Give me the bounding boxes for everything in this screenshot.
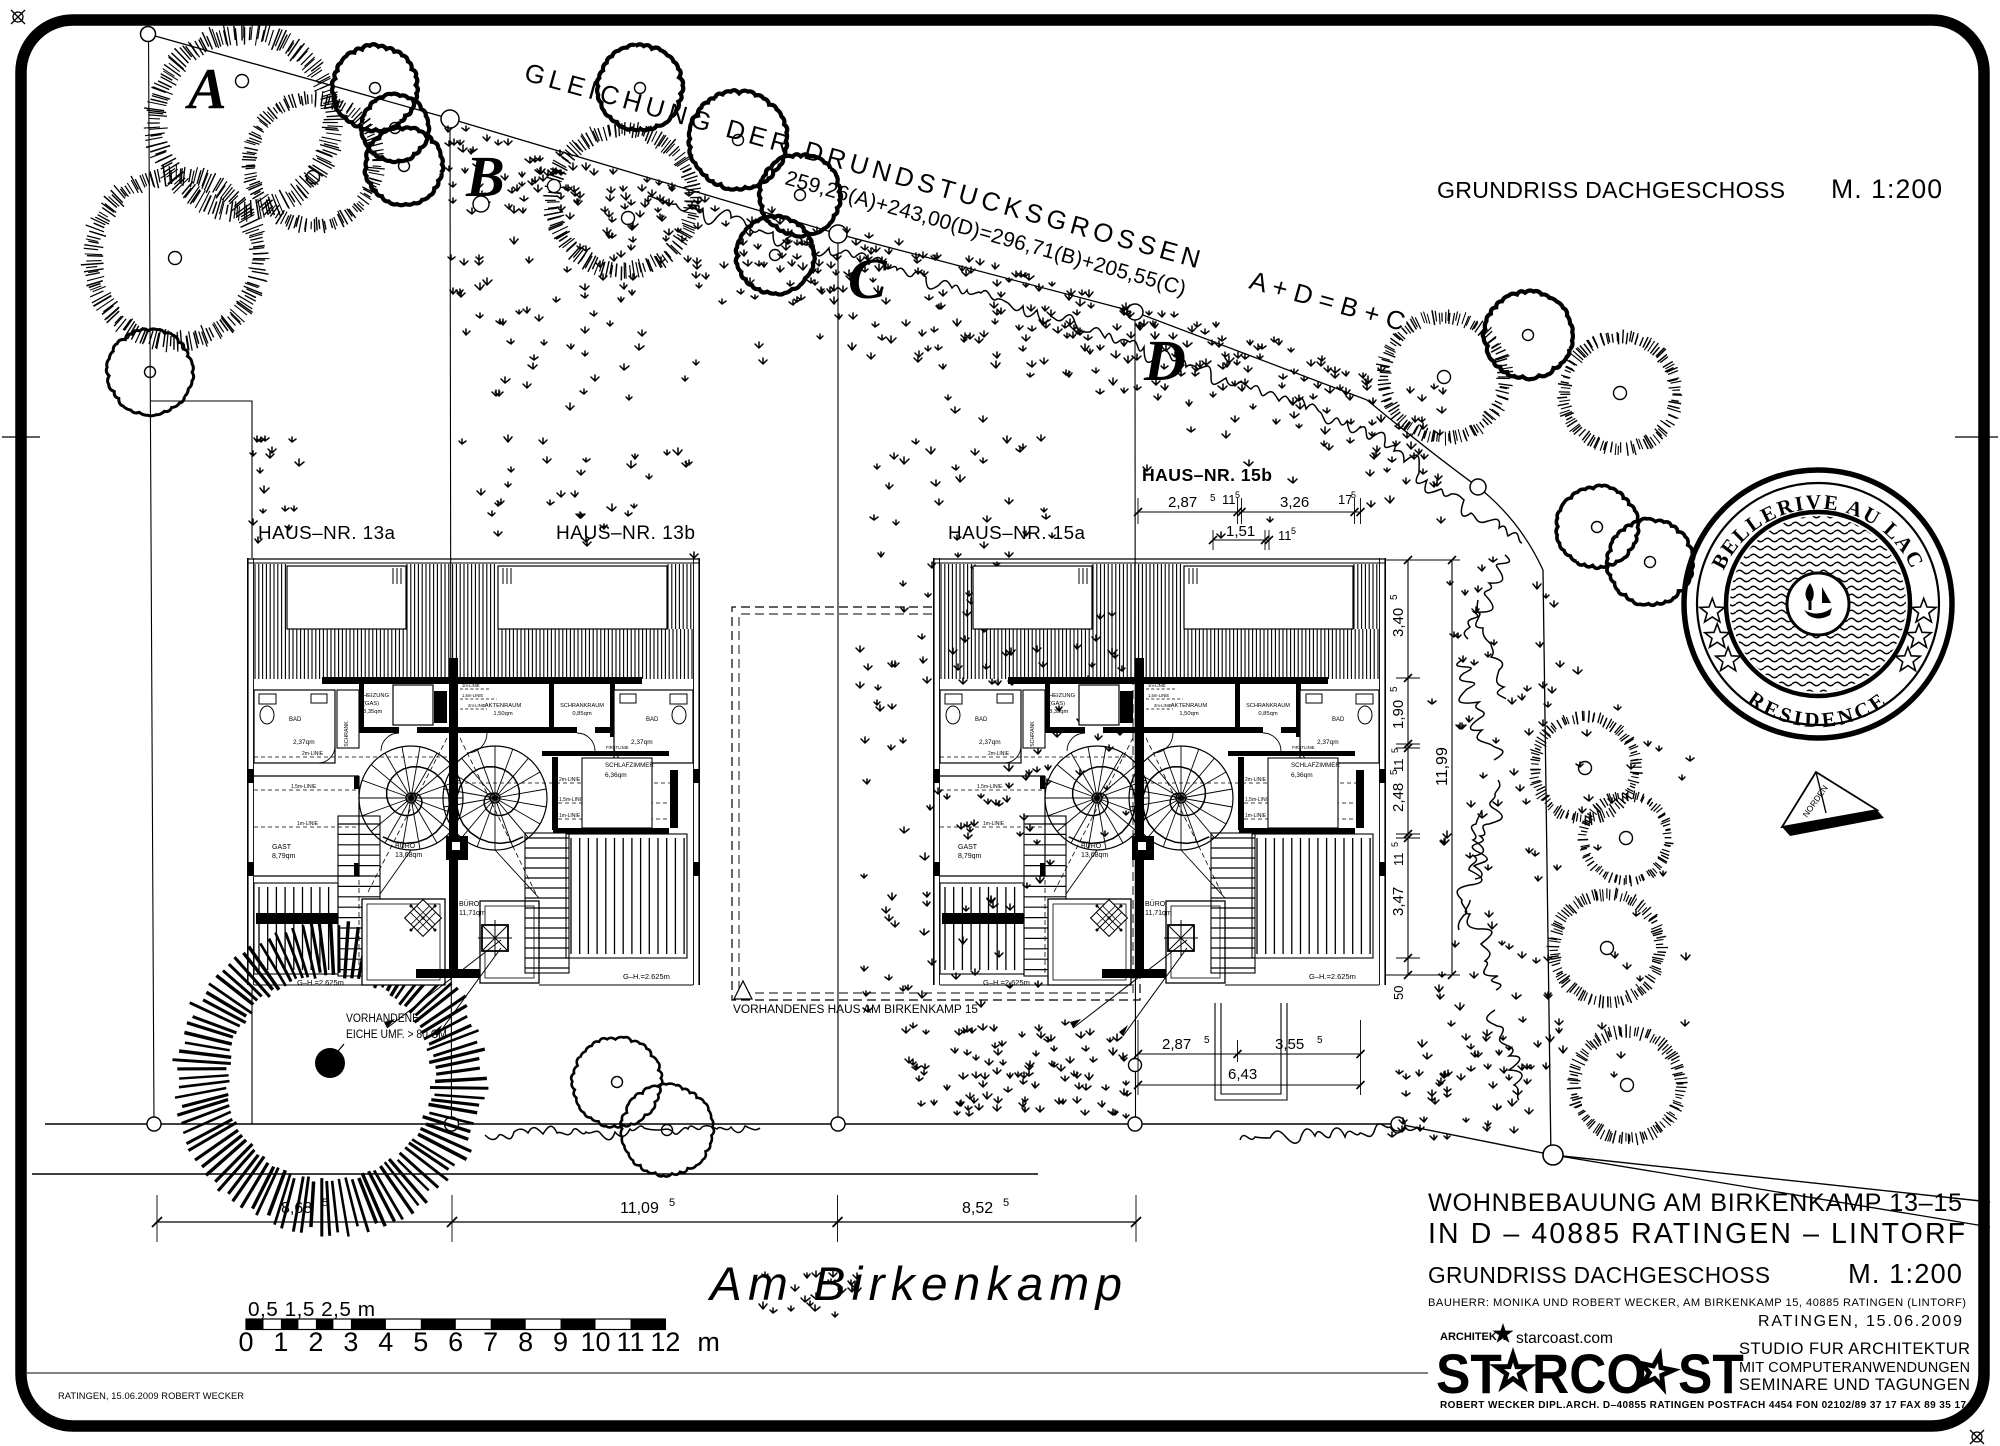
svg-text:3,40: 3,40: [1390, 608, 1407, 637]
svg-text:8,68: 8,68: [281, 1200, 312, 1217]
svg-text:5: 5: [1389, 594, 1400, 600]
svg-text:8: 8: [518, 1327, 533, 1357]
svg-text:2,48: 2,48: [1390, 783, 1407, 812]
svg-text:11: 11: [1391, 853, 1406, 867]
svg-text:m: m: [697, 1327, 720, 1357]
svg-text:M. 1:200: M. 1:200: [1848, 1258, 1962, 1289]
svg-text:2,87: 2,87: [1168, 494, 1197, 511]
svg-text:MIT COMPUTERANWENDUNGEN: MIT COMPUTERANWENDUNGEN: [1739, 1360, 1970, 1376]
svg-text:0: 0: [238, 1327, 253, 1357]
svg-text:2: 2: [308, 1327, 323, 1357]
svg-text:1,90: 1,90: [1390, 700, 1407, 729]
svg-text:5: 5: [1235, 490, 1240, 500]
svg-text:5: 5: [1390, 748, 1400, 753]
svg-text:STUDIO FUR ARCHITEKTUR: STUDIO FUR ARCHITEKTUR: [1739, 1340, 1970, 1358]
svg-text:Am Birkenkamp: Am Birkenkamp: [707, 1258, 1128, 1311]
svg-text:1: 1: [273, 1327, 288, 1357]
svg-text:C: C: [848, 246, 888, 311]
svg-text:11: 11: [1278, 528, 1292, 543]
svg-text:2,87: 2,87: [1162, 1036, 1191, 1053]
svg-text:ST: ST: [1436, 1343, 1502, 1405]
svg-text:5: 5: [322, 1197, 328, 1209]
svg-text:HAUS–NR. 13a: HAUS–NR. 13a: [258, 522, 396, 543]
svg-text:D: D: [1143, 328, 1186, 393]
svg-text:5: 5: [1210, 493, 1216, 504]
svg-text:8,52: 8,52: [962, 1200, 993, 1217]
svg-text:ROBERT WECKER DIPL.ARCH. D–: ROBERT WECKER DIPL.ARCH. D–40855 RATINGE…: [1440, 1400, 1966, 1411]
svg-text:10: 10: [580, 1327, 610, 1357]
svg-text:3,55: 3,55: [1275, 1036, 1304, 1053]
svg-text:GRUNDRISS DACHGESCHOSS: GRUNDRISS DACHGESCHOSS: [1428, 1262, 1770, 1288]
svg-text:5: 5: [669, 1197, 675, 1209]
svg-text:SEMINARE UND TAGUNGEN: SEMINARE UND TAGUNGEN: [1739, 1376, 1970, 1394]
svg-text:5: 5: [1389, 686, 1400, 692]
svg-text:5: 5: [1003, 1197, 1009, 1209]
svg-text:VORHANDENE: VORHANDENE: [346, 1013, 419, 1026]
svg-text:BAUHERR: MONIKA UND ROBER: BAUHERR: MONIKA UND ROBERT WECKER, AM BI…: [1428, 1297, 1966, 1309]
svg-text:5: 5: [1389, 769, 1400, 775]
svg-text:M. 1:200: M. 1:200: [1831, 174, 1942, 204]
svg-text:0,5 1,5 2,5 m: 0,5 1,5 2,5 m: [248, 1298, 375, 1321]
svg-text:5: 5: [413, 1327, 428, 1357]
svg-text:5: 5: [1390, 842, 1400, 847]
svg-text:IN D – 40885 RATINGEN –: IN D – 40885 RATINGEN – LINTORF: [1428, 1218, 1965, 1250]
svg-text:WOHNBEBAUUNG AM BIRKENKAMP: WOHNBEBAUUNG AM BIRKENKAMP 13–15: [1428, 1189, 1962, 1217]
svg-text:ST: ST: [1678, 1343, 1744, 1405]
svg-text:RATINGEN, 15.06.2009: RATINGEN, 15.06.2009: [1758, 1313, 1962, 1330]
svg-text:3: 3: [343, 1327, 358, 1357]
svg-text:6,43: 6,43: [1228, 1066, 1257, 1083]
svg-text:50: 50: [1391, 986, 1406, 1000]
svg-text:1,51: 1,51: [1226, 523, 1255, 540]
svg-text:11: 11: [616, 1327, 644, 1357]
svg-text:7: 7: [483, 1327, 498, 1357]
svg-text:HAUS–NR. 15a: HAUS–NR. 15a: [948, 522, 1086, 543]
svg-text:3,47: 3,47: [1390, 887, 1407, 916]
svg-text:11: 11: [1222, 492, 1236, 507]
svg-text:11,09: 11,09: [620, 1200, 659, 1217]
svg-text:11,99: 11,99: [1434, 747, 1451, 786]
svg-text:GRUNDRISS DACHGESCHOSS: GRUNDRISS DACHGESCHOSS: [1437, 177, 1785, 203]
svg-text:5: 5: [1351, 490, 1356, 500]
svg-text:12: 12: [650, 1327, 680, 1357]
svg-text:9: 9: [553, 1327, 568, 1357]
svg-text:RATINGEN, 15.06.2009 ROBERT W: RATINGEN, 15.06.2009 ROBERT WECKER: [58, 1391, 244, 1401]
svg-text:HAUS–NR. 15b: HAUS–NR. 15b: [1142, 465, 1272, 485]
svg-text:4: 4: [378, 1327, 393, 1357]
svg-text:RCO: RCO: [1532, 1343, 1646, 1405]
svg-text:A: A: [185, 56, 227, 121]
svg-text:VORHANDENES HAUS AM BIRKENKAMP: VORHANDENES HAUS AM BIRKENKAMP 15: [733, 1002, 978, 1016]
svg-text:5: 5: [1204, 1035, 1210, 1046]
svg-text:5: 5: [1291, 526, 1296, 536]
svg-text:3,26: 3,26: [1280, 494, 1309, 511]
svg-text:HAUS–NR. 13b: HAUS–NR. 13b: [556, 523, 695, 544]
svg-text:5: 5: [1317, 1035, 1323, 1046]
svg-text:EICHE UMF. > 80 CM: EICHE UMF. > 80 CM: [346, 1029, 447, 1042]
svg-text:6: 6: [448, 1327, 463, 1357]
